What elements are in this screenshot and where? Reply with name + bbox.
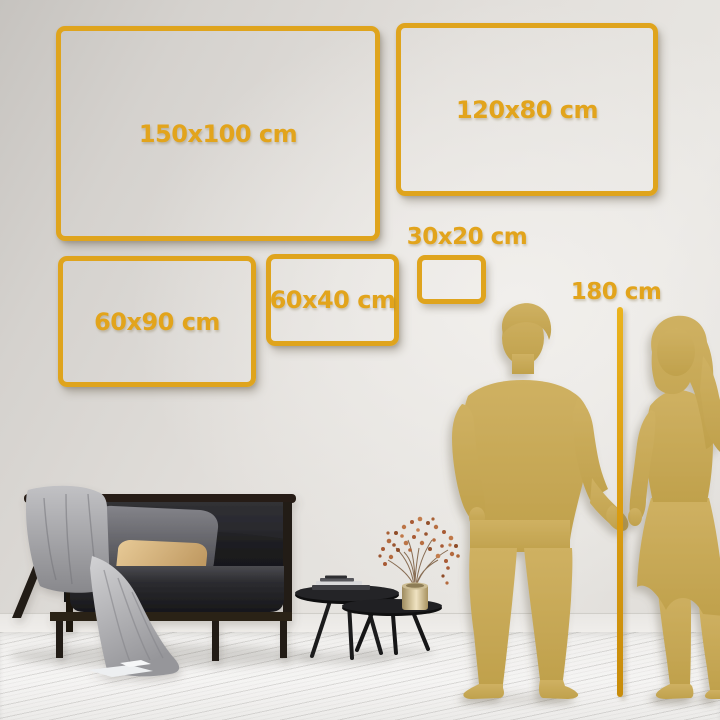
measuring-pole-icon: [617, 307, 623, 697]
scene-artwork: [0, 0, 720, 720]
man-silhouette-icon: [452, 303, 628, 699]
book-stack: [312, 585, 370, 590]
woman-silhouette-icon: [628, 316, 720, 699]
vase: [402, 586, 428, 610]
size-guide-scene: 150x100 cm 120x80 cm 60x90 cm 60x40 cm 3…: [0, 0, 720, 720]
